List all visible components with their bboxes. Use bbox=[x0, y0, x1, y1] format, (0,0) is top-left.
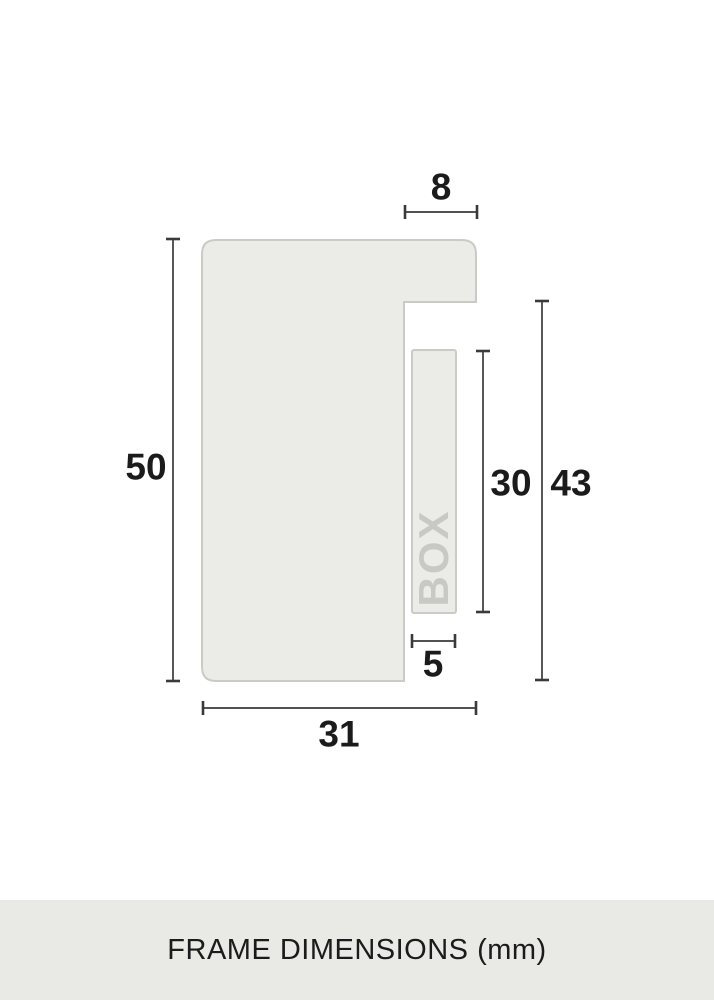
dim-line-spacer-height bbox=[476, 351, 490, 612]
dim-line-total-height bbox=[166, 239, 180, 681]
dim-label-lip-width: 8 bbox=[431, 169, 452, 206]
footer-band: FRAME DIMENSIONS (mm) bbox=[0, 900, 714, 1000]
dim-label-total-height: 50 bbox=[125, 449, 166, 486]
dim-label-total-width: 31 bbox=[318, 716, 359, 753]
profile-cross-section-drawing bbox=[0, 0, 714, 1000]
dim-label-spacer-width: 5 bbox=[423, 646, 444, 683]
dim-label-spacer-height: 30 bbox=[490, 465, 531, 502]
dim-line-inner-height bbox=[535, 301, 549, 680]
dim-label-inner-height: 43 bbox=[550, 465, 591, 502]
frame-dimension-diagram: 8 50 30 43 5 31 BOX FRAME DIMENSIONS (mm… bbox=[0, 0, 714, 1000]
box-brand-watermark: BOX bbox=[413, 509, 455, 606]
footer-caption: FRAME DIMENSIONS (mm) bbox=[167, 934, 546, 967]
